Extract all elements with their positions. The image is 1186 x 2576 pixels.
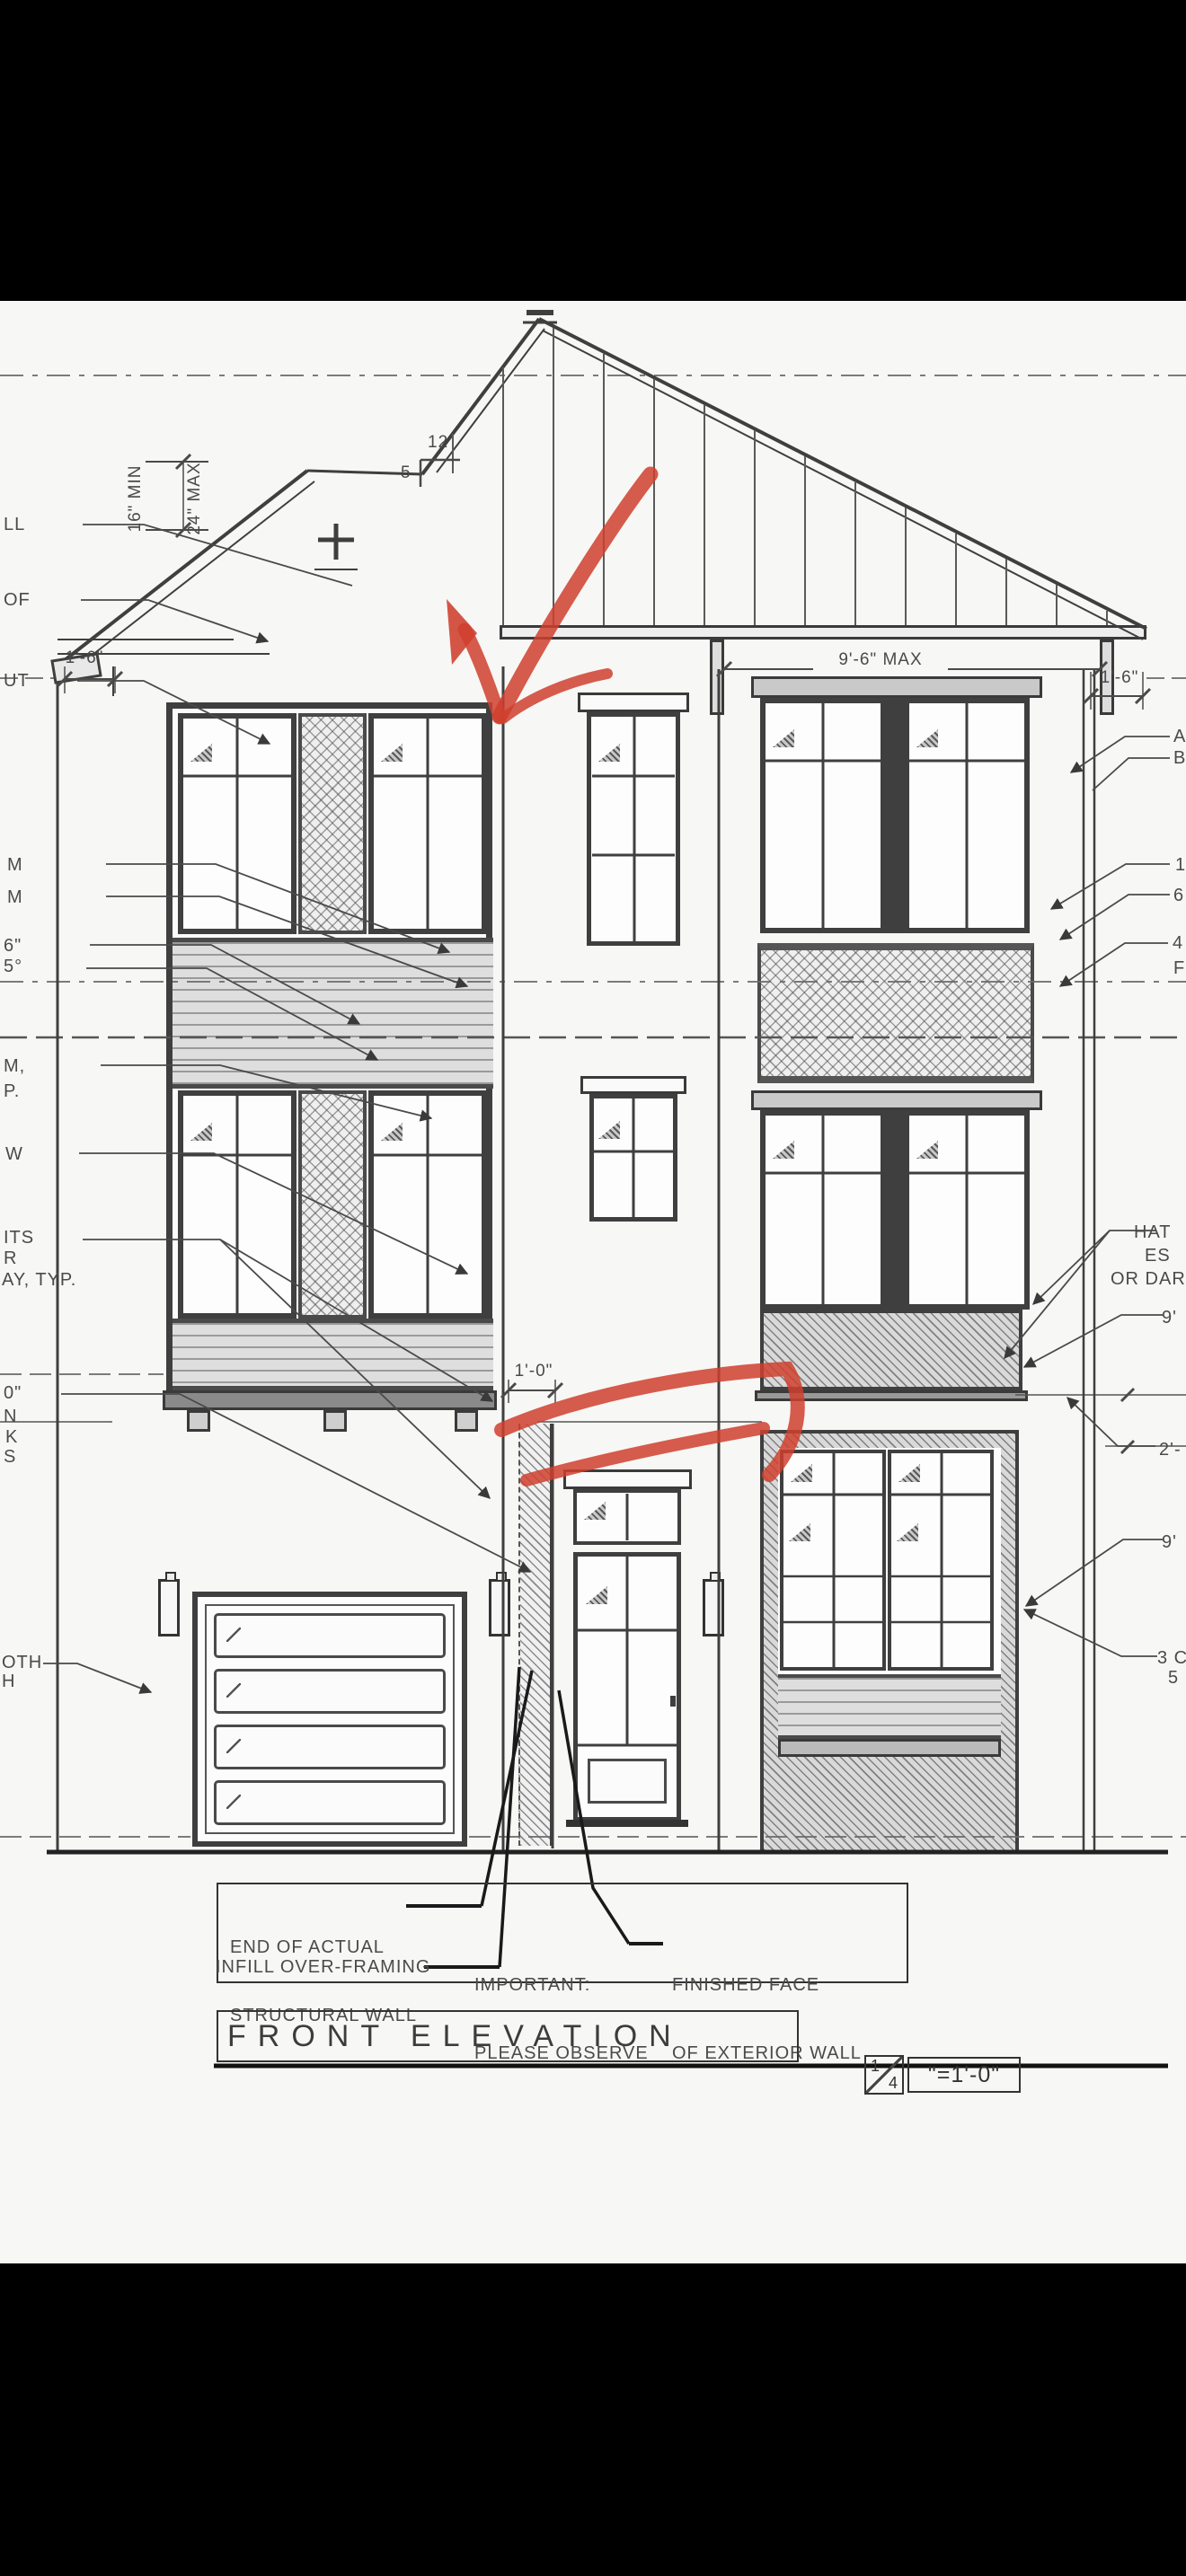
right-edge-label: 2'- xyxy=(1159,1439,1182,1460)
right-edge-label: 9' xyxy=(1162,1531,1177,1553)
roof-slope-run: 12 xyxy=(428,433,448,453)
drawing-title: FRONT ELEVATION xyxy=(218,2012,797,2060)
gable-cross-detail xyxy=(314,524,358,569)
right-edge-label: OR DARK xyxy=(1111,1268,1186,1290)
left-edge-label: N xyxy=(4,1406,17,1427)
dimension-label: 1'-0" xyxy=(496,1362,571,1381)
right-edge-label: 9' xyxy=(1162,1307,1177,1328)
left-edge-label: LL xyxy=(4,514,25,535)
left-edge-label: R xyxy=(4,1248,17,1269)
callout-text: END OF ACTUAL xyxy=(230,1936,417,1958)
scale-numerator: 1 xyxy=(871,2057,880,2076)
right-edge-label: B xyxy=(1173,747,1186,769)
right-edge-label: 5 xyxy=(1168,1667,1179,1689)
gable-board-lines xyxy=(453,328,1107,625)
dimension-text: 24" MAX xyxy=(185,445,205,552)
right-edge-label: 1 xyxy=(1175,854,1186,876)
screenshot-stage: LL OF UT M M 6" 5° M, P. W ITS R AY, TYP… xyxy=(0,0,1186,2576)
dimension-label-overhang: 16" MIN 24" MAX xyxy=(86,445,126,552)
left-edge-label: P. xyxy=(4,1081,20,1102)
left-edge-label: M, xyxy=(4,1055,25,1077)
left-edge-label: 6" xyxy=(4,935,22,957)
right-edge-label: ES xyxy=(1145,1245,1171,1266)
left-edge-label: K xyxy=(5,1426,18,1448)
drawing-linework xyxy=(0,0,1186,2576)
left-edge-label: UT xyxy=(4,670,30,692)
reference-lines xyxy=(0,375,1186,1837)
left-edge-label: OF xyxy=(4,589,31,611)
left-edge-label: H xyxy=(2,1671,15,1692)
top-letterbox-bar xyxy=(0,0,1186,301)
scale-text: "=1'-0" xyxy=(909,2059,1019,2091)
right-edge-label: 6 xyxy=(1173,885,1184,906)
window-grids xyxy=(183,703,1024,1745)
dimension-text: 16" MIN xyxy=(126,445,146,552)
callout-text: FINISHED FACE xyxy=(672,1974,862,1996)
left-edge-label: W xyxy=(5,1143,23,1165)
left-edge-label: M xyxy=(7,887,23,908)
dimension-label: 9'-6" MAX xyxy=(813,650,948,670)
scale-text-box: "=1'-0" xyxy=(907,2057,1021,2093)
left-edge-label: M xyxy=(7,854,23,876)
scale-fraction-box: 1 4 xyxy=(864,2055,904,2095)
right-edge-label: 4 xyxy=(1173,932,1183,954)
left-edge-label: S xyxy=(4,1446,16,1468)
bottom-letterbox-bar xyxy=(0,2263,1186,2576)
left-edge-label: ITS xyxy=(4,1227,34,1248)
wall-edges xyxy=(58,665,1094,1852)
right-edge-label: F xyxy=(1173,957,1185,979)
dimension-label: 1'-6" xyxy=(49,648,120,668)
drawing-title-box: FRONT ELEVATION xyxy=(217,2010,799,2062)
right-edge-label: HAT xyxy=(1134,1222,1172,1243)
right-edge-label: 3 C xyxy=(1157,1647,1186,1669)
left-edge-label: 5° xyxy=(4,956,22,977)
right-edge-label: A xyxy=(1173,726,1186,747)
callout-infill: INFILL OVER-FRAMING xyxy=(216,1956,430,1978)
scale-denominator: 4 xyxy=(889,2074,898,2093)
dimension-label: 1'-6" xyxy=(1084,668,1155,688)
left-edge-label: AY, TYP. xyxy=(2,1269,76,1291)
roof-slope-rise: 5 xyxy=(401,463,412,483)
leader-lines xyxy=(43,525,1170,1692)
callout-text: IMPORTANT: xyxy=(474,1974,649,1996)
red-marker-annotation xyxy=(447,474,798,1480)
left-edge-label: 0" xyxy=(4,1382,22,1404)
